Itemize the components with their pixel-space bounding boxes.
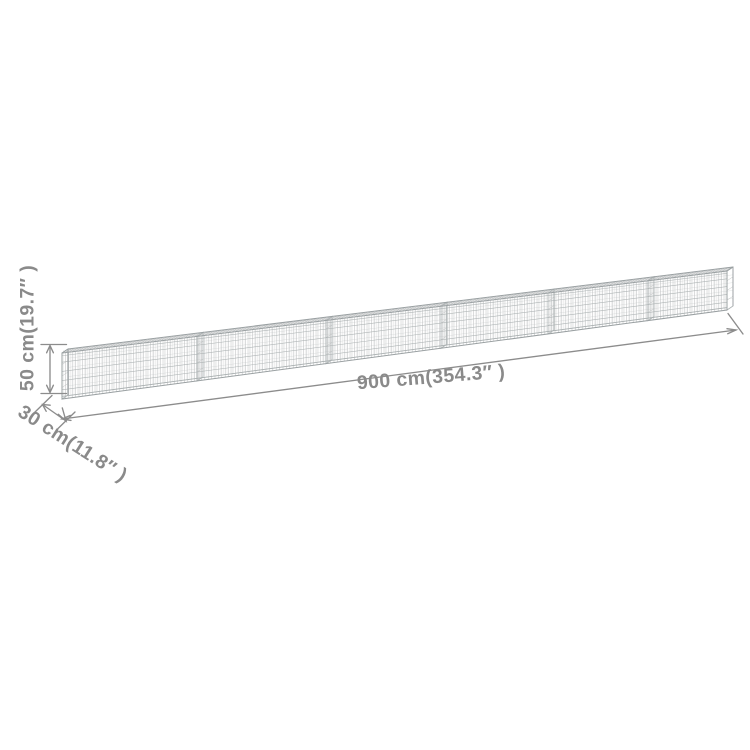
- mesh-wire: [64, 270, 729, 352]
- length-dimension-label: 900 cm(354.3″ ): [356, 360, 506, 394]
- mesh-wire: [727, 277, 733, 281]
- mesh-wire: [62, 273, 727, 355]
- mesh-wire: [62, 287, 727, 372]
- frame-edge: [548, 289, 554, 334]
- gabion-diagram-canvas: 900 cm(354.3″ ) 50 cm(19.7″ ) 30 cm(11.8…: [0, 0, 750, 750]
- mesh-wire: [727, 287, 733, 291]
- height-dimension-label: 50 cm(19.7″ ): [16, 265, 38, 391]
- height-dimension: [41, 345, 67, 394]
- product-diagram: 900 cm(354.3″ ) 50 cm(19.7″ ) 30 cm(11.8…: [0, 0, 750, 750]
